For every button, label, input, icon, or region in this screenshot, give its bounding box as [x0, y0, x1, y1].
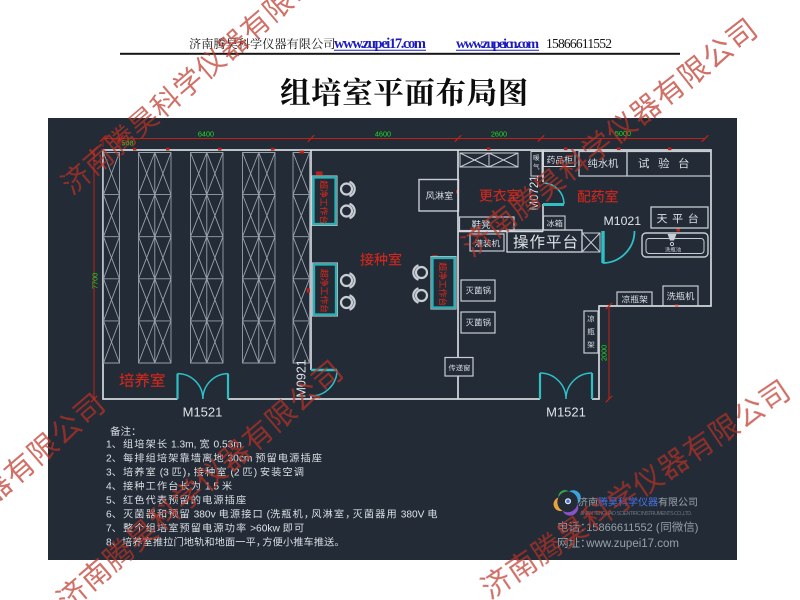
svg-text:www.zupeicn.com: www.zupeicn.com: [456, 37, 539, 52]
svg-text:6400: 6400: [198, 129, 214, 138]
svg-text:1: 1: [106, 440, 112, 451]
svg-text:(3: (3: [160, 468, 169, 479]
svg-text:4600: 4600: [375, 129, 391, 138]
svg-text:M0921: M0921: [295, 359, 309, 397]
svg-text:(: (: [267, 510, 271, 521]
svg-text:M1521: M1521: [183, 405, 223, 420]
svg-text:380v: 380v: [194, 510, 217, 521]
svg-text:2000: 2000: [600, 345, 609, 361]
svg-text:M1021: M1021: [604, 214, 642, 228]
svg-text:www.zupei17.com: www.zupei17.com: [334, 36, 426, 52]
svg-text:): ): [183, 468, 186, 479]
svg-text:6: 6: [106, 510, 112, 521]
svg-text:): ): [695, 522, 699, 534]
svg-text:7: 7: [106, 524, 112, 535]
svg-text:1.3m,: 1.3m,: [171, 440, 196, 451]
svg-text:): ): [254, 468, 257, 479]
svg-text:3: 3: [106, 468, 112, 479]
svg-text:2600: 2600: [491, 129, 507, 138]
svg-text:7700: 7700: [91, 273, 100, 289]
svg-text:15866611552: 15866611552: [546, 36, 612, 51]
svg-text:www.zupei17.com: www.zupei17.com: [585, 538, 679, 550]
svg-text:4: 4: [106, 482, 112, 493]
svg-text:2: 2: [106, 454, 112, 465]
svg-text:380V: 380V: [401, 510, 425, 521]
svg-text:M1521: M1521: [546, 405, 586, 420]
svg-text:5: 5: [106, 496, 112, 507]
svg-text:>60kw: >60kw: [250, 524, 280, 535]
